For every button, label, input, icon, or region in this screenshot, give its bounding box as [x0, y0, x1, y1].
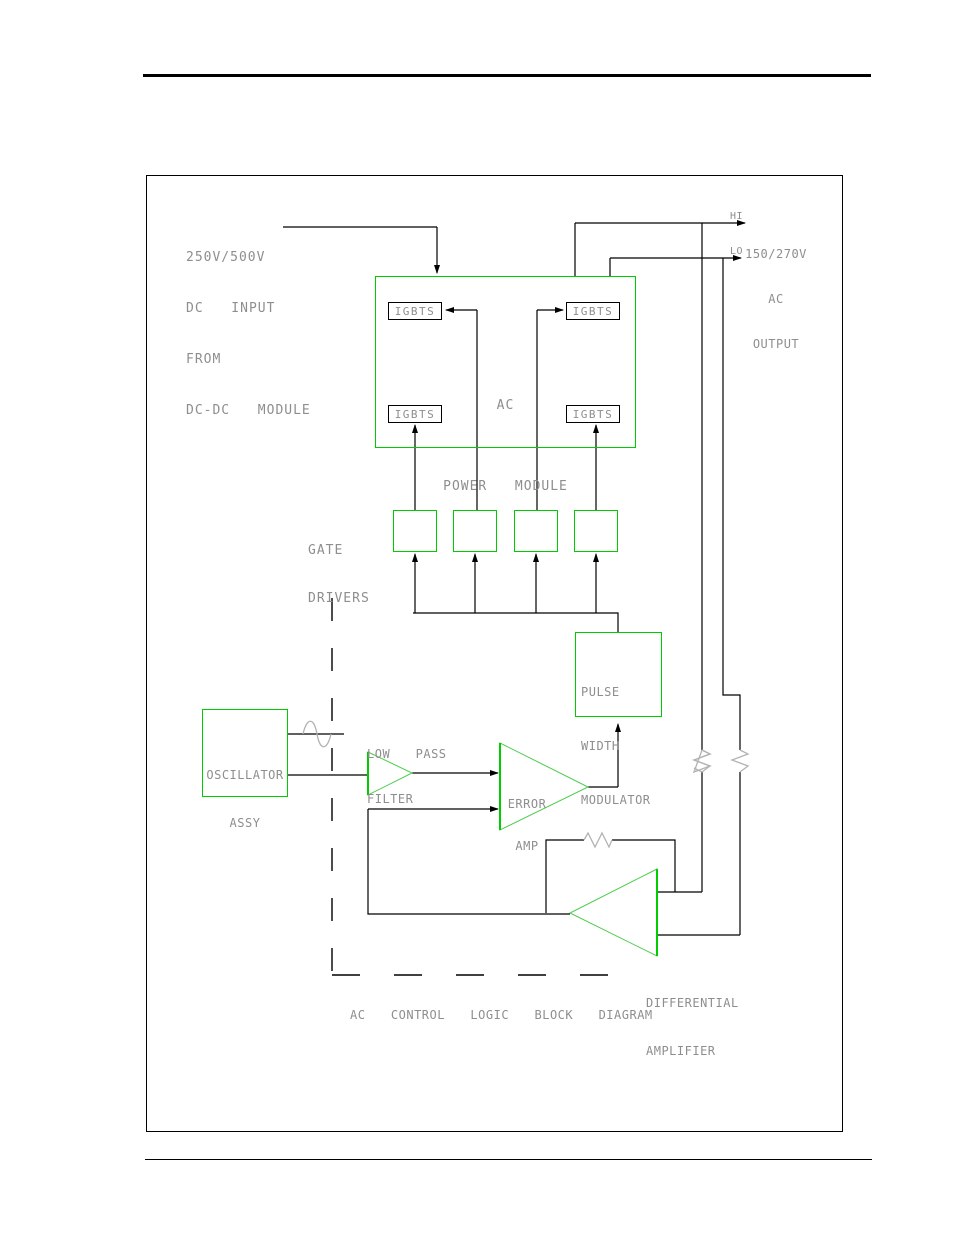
power-module-title: AC POWER MODULE — [375, 338, 636, 554]
dc-input-label: 250V/500V DC INPUT FROM DC-DC MODULE — [186, 215, 311, 453]
error-amp-label: ERROR AMP — [498, 769, 556, 881]
igbt-label: IGBTS — [395, 305, 436, 318]
ac-output-label: 150/270V AC OUTPUT — [737, 217, 815, 382]
low-pass-filter-label: LOW PASS FILTER — [367, 717, 447, 837]
pwm-label: PULSE WIDTH MODULATOR — [581, 647, 651, 845]
gate-bus — [413, 613, 618, 632]
diff-amp-triangle — [570, 869, 657, 956]
diffamp-feedback — [546, 840, 675, 913]
document-page: IGBTS IGBTS IGBTS IGBTS 250V/500V DC INP… — [0, 0, 954, 1235]
oscillator-label: OSCILLATOR ASSY — [202, 735, 288, 863]
differential-amplifier-label: DIFFERENTIAL AMPLIFIER — [646, 963, 739, 1091]
wiring-layer — [0, 0, 954, 1235]
igbt-box-top-right: IGBTS — [566, 302, 620, 320]
igbt-label: IGBTS — [573, 305, 614, 318]
resistor-lo-sense — [732, 750, 748, 772]
gate-drivers-label: GATE DRIVERS — [308, 511, 370, 639]
diagram-caption: AC CONTROL LOGIC BLOCK DIAGRAM — [350, 1007, 653, 1024]
igbt-box-top-left: IGBTS — [388, 302, 442, 320]
